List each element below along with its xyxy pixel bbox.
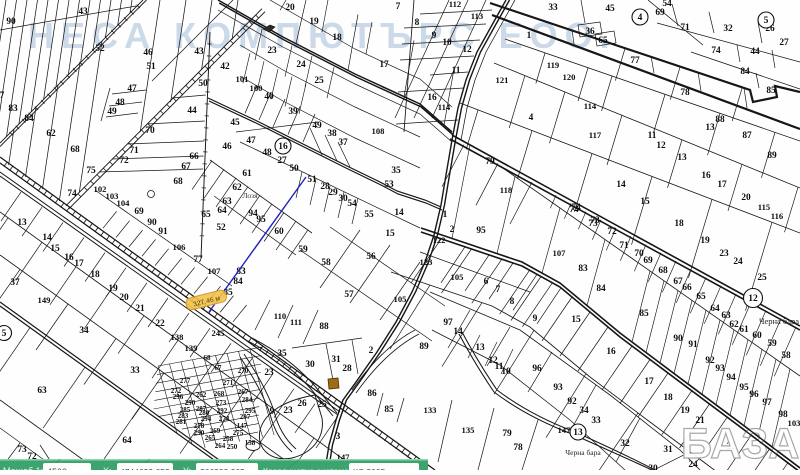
svg-text:Черна бара: Черна бара — [565, 448, 601, 457]
svg-text:16: 16 — [427, 93, 437, 103]
svg-text:37: 37 — [10, 278, 20, 288]
svg-text:21: 21 — [135, 304, 145, 314]
svg-text:35: 35 — [391, 166, 401, 176]
svg-text:75: 75 — [86, 166, 96, 176]
svg-text:98: 98 — [778, 410, 788, 420]
svg-text:19: 19 — [700, 236, 710, 246]
svg-text:6: 6 — [484, 277, 489, 287]
svg-text:18: 18 — [332, 33, 342, 43]
svg-text:33: 33 — [130, 366, 140, 376]
svg-text:9: 9 — [270, 407, 275, 417]
svg-text:4: 4 — [529, 113, 534, 123]
svg-text:290: 290 — [194, 429, 205, 437]
svg-text:5: 5 — [764, 16, 769, 26]
svg-text:17: 17 — [74, 259, 84, 269]
svg-text:52: 52 — [95, 44, 105, 54]
svg-text:33: 33 — [548, 3, 558, 13]
svg-text:88: 88 — [319, 322, 329, 332]
svg-text:2: 2 — [450, 225, 455, 235]
svg-text:58: 58 — [321, 258, 331, 268]
svg-text:54: 54 — [662, 0, 672, 9]
svg-text:10: 10 — [501, 367, 511, 377]
svg-text:264: 264 — [215, 442, 226, 450]
svg-text:73: 73 — [17, 445, 27, 455]
svg-text:62: 62 — [46, 129, 56, 139]
svg-text:62: 62 — [729, 320, 739, 330]
svg-text:84: 84 — [233, 277, 243, 287]
svg-text:Лозя: Лозя — [242, 191, 258, 200]
svg-text:28: 28 — [342, 364, 352, 374]
svg-text:85: 85 — [639, 309, 649, 319]
svg-text:14: 14 — [453, 327, 463, 337]
svg-text:114: 114 — [584, 101, 597, 111]
svg-text:16: 16 — [64, 253, 74, 263]
svg-text:95: 95 — [256, 215, 266, 225]
svg-text:60: 60 — [752, 331, 762, 341]
svg-text:23: 23 — [719, 249, 729, 259]
svg-text:269: 269 — [210, 427, 221, 435]
svg-text:92: 92 — [567, 397, 577, 407]
svg-text:94: 94 — [726, 373, 736, 383]
svg-text:32: 32 — [620, 439, 630, 449]
svg-text:104: 104 — [117, 198, 131, 208]
svg-text:1: 1 — [443, 210, 448, 220]
svg-text:18: 18 — [674, 219, 684, 229]
svg-text:30: 30 — [305, 360, 315, 370]
svg-text:72: 72 — [607, 227, 617, 237]
svg-text:23: 23 — [267, 46, 277, 56]
svg-text:39: 39 — [288, 107, 298, 117]
svg-text:15: 15 — [50, 244, 60, 254]
svg-text:1: 1 — [527, 31, 532, 41]
svg-text:65: 65 — [696, 292, 706, 302]
svg-text:7: 7 — [0, 91, 5, 101]
svg-text:13: 13 — [573, 428, 583, 438]
svg-text:118: 118 — [500, 185, 513, 195]
svg-text:59: 59 — [298, 245, 308, 255]
svg-text:43: 43 — [78, 7, 88, 17]
svg-text:105: 105 — [451, 272, 464, 282]
svg-text:79: 79 — [502, 429, 512, 439]
svg-text:275: 275 — [233, 429, 244, 437]
svg-text:11: 11 — [452, 66, 461, 76]
svg-text:90: 90 — [6, 17, 16, 27]
svg-text:296: 296 — [173, 393, 184, 401]
svg-text:15: 15 — [571, 315, 581, 325]
svg-text:115: 115 — [758, 202, 770, 212]
svg-text:16: 16 — [701, 171, 711, 181]
svg-text:4: 4 — [638, 13, 643, 23]
svg-text:3: 3 — [336, 432, 341, 442]
svg-text:50: 50 — [198, 79, 208, 89]
svg-text:70: 70 — [145, 126, 155, 136]
svg-text:74: 74 — [711, 46, 721, 56]
svg-text:16: 16 — [278, 142, 288, 152]
svg-text:267: 267 — [238, 388, 249, 396]
svg-text:93: 93 — [715, 364, 725, 374]
svg-text:96: 96 — [749, 390, 759, 400]
svg-text:95: 95 — [739, 383, 749, 393]
svg-text:147: 147 — [558, 425, 572, 435]
svg-text:8: 8 — [415, 18, 420, 28]
svg-text:62: 62 — [232, 183, 242, 193]
svg-text:14: 14 — [42, 233, 52, 243]
svg-text:17: 17 — [717, 180, 727, 190]
svg-text:24: 24 — [733, 257, 743, 267]
svg-text:139: 139 — [185, 343, 198, 353]
svg-text:20: 20 — [119, 293, 129, 303]
svg-text:112: 112 — [449, 0, 461, 9]
svg-text:133: 133 — [424, 405, 437, 415]
svg-text:87: 87 — [742, 131, 752, 141]
svg-text:83: 83 — [8, 104, 18, 114]
svg-text:89: 89 — [419, 342, 429, 352]
svg-text:19: 19 — [108, 284, 118, 294]
svg-text:250: 250 — [227, 443, 238, 451]
svg-text:45: 45 — [230, 118, 240, 128]
svg-text:270: 270 — [238, 367, 249, 375]
svg-text:91: 91 — [158, 227, 168, 237]
svg-text:15: 15 — [640, 197, 650, 207]
svg-text:54: 54 — [347, 199, 357, 209]
svg-text:30: 30 — [648, 464, 658, 470]
svg-text:19: 19 — [680, 406, 690, 416]
svg-text:Координатна система: Координатна система — [263, 466, 349, 470]
svg-text:117: 117 — [589, 130, 602, 140]
svg-text:2: 2 — [369, 346, 374, 356]
svg-text:121: 121 — [496, 75, 509, 85]
svg-text:46: 46 — [143, 48, 153, 58]
svg-text:71: 71 — [680, 23, 690, 33]
svg-text:86: 86 — [367, 389, 377, 399]
svg-text:69: 69 — [643, 256, 653, 266]
svg-text:51: 51 — [307, 175, 317, 185]
svg-text:50: 50 — [289, 164, 299, 174]
svg-text:61: 61 — [242, 169, 252, 179]
svg-text:74: 74 — [67, 189, 77, 199]
svg-text:38: 38 — [327, 129, 337, 139]
svg-text:88: 88 — [715, 115, 725, 125]
svg-text:20: 20 — [285, 3, 295, 13]
svg-text:7: 7 — [396, 2, 401, 12]
svg-text:43: 43 — [194, 47, 204, 57]
svg-text:105: 105 — [394, 294, 407, 304]
svg-text:10: 10 — [442, 38, 452, 48]
svg-text:17: 17 — [644, 377, 654, 387]
svg-text:29: 29 — [328, 188, 338, 198]
svg-text:93: 93 — [553, 383, 563, 393]
svg-text:120: 120 — [563, 72, 576, 82]
svg-text:67: 67 — [215, 364, 223, 372]
svg-text:268: 268 — [214, 390, 225, 398]
svg-text:281: 281 — [176, 418, 187, 426]
svg-text:71: 71 — [619, 241, 629, 251]
svg-text:83: 83 — [578, 264, 588, 274]
svg-text:37: 37 — [338, 138, 348, 148]
svg-text:47: 47 — [246, 136, 256, 146]
svg-text:23: 23 — [264, 368, 274, 378]
svg-text:79: 79 — [485, 157, 495, 167]
svg-text:Мащаб 1:: Мащаб 1: — [3, 466, 43, 470]
svg-text:110: 110 — [274, 311, 286, 321]
svg-text:74: 74 — [569, 205, 579, 215]
svg-text:48: 48 — [262, 148, 272, 158]
svg-text:53: 53 — [384, 180, 394, 190]
svg-text:7: 7 — [496, 285, 501, 295]
svg-text:12: 12 — [462, 45, 472, 55]
svg-text:116: 116 — [771, 211, 784, 221]
svg-text:46: 46 — [222, 142, 232, 152]
svg-text:111: 111 — [290, 317, 302, 327]
svg-text:51: 51 — [146, 62, 156, 72]
svg-text:44: 44 — [187, 106, 197, 116]
svg-text:297: 297 — [240, 413, 251, 421]
svg-text:119: 119 — [547, 60, 559, 70]
svg-text:96: 96 — [532, 364, 542, 374]
svg-text:72: 72 — [119, 156, 129, 166]
svg-text:123: 123 — [420, 257, 433, 267]
svg-text:277: 277 — [180, 377, 191, 385]
svg-text:294: 294 — [201, 415, 212, 423]
svg-text:14: 14 — [616, 180, 626, 190]
svg-text:35: 35 — [277, 349, 287, 359]
svg-text:284: 284 — [242, 396, 253, 404]
svg-text:292: 292 — [217, 407, 228, 415]
svg-text:271: 271 — [223, 379, 234, 387]
svg-text:107: 107 — [553, 248, 567, 258]
svg-text:34: 34 — [79, 326, 89, 336]
svg-text:49: 49 — [107, 107, 117, 117]
svg-text:108: 108 — [372, 126, 386, 136]
svg-text:23: 23 — [283, 406, 293, 416]
svg-text:97: 97 — [762, 398, 772, 408]
svg-text:40: 40 — [264, 92, 274, 102]
svg-text:18: 18 — [663, 393, 673, 403]
svg-text:63: 63 — [37, 386, 47, 396]
svg-text:19: 19 — [309, 17, 319, 27]
svg-text:92: 92 — [705, 356, 715, 366]
svg-text:44: 44 — [750, 47, 760, 57]
svg-text:64: 64 — [710, 304, 720, 314]
svg-text:13: 13 — [17, 218, 27, 228]
svg-text:122: 122 — [433, 235, 446, 245]
svg-text:85: 85 — [766, 86, 776, 96]
svg-text:68: 68 — [173, 177, 183, 187]
svg-text:47: 47 — [127, 84, 137, 94]
svg-text:8: 8 — [510, 297, 515, 307]
svg-text:84: 84 — [596, 284, 606, 294]
svg-text:77: 77 — [630, 56, 640, 66]
svg-text:67: 67 — [181, 162, 191, 172]
svg-text:56: 56 — [366, 252, 376, 262]
svg-text:66: 66 — [189, 152, 199, 162]
svg-text:33: 33 — [591, 416, 601, 426]
svg-text:45: 45 — [605, 4, 615, 14]
svg-text:57: 57 — [344, 290, 354, 300]
svg-text:61: 61 — [739, 325, 749, 335]
svg-text:78: 78 — [680, 88, 690, 98]
svg-text:59: 59 — [767, 339, 777, 349]
svg-text:36: 36 — [585, 27, 595, 37]
svg-text:X:: X: — [103, 466, 112, 470]
svg-text:15: 15 — [385, 229, 395, 239]
svg-text:71: 71 — [129, 146, 139, 156]
svg-text:Черна бара: Черна бара — [759, 316, 799, 326]
svg-text:31: 31 — [331, 355, 341, 365]
svg-text:274: 274 — [219, 415, 230, 423]
svg-text:273: 273 — [216, 399, 227, 407]
svg-text:12: 12 — [656, 141, 666, 151]
svg-text:27: 27 — [277, 156, 287, 166]
svg-text:49: 49 — [312, 121, 322, 131]
svg-text:78: 78 — [513, 443, 523, 453]
svg-text:113: 113 — [471, 11, 483, 21]
svg-text:31: 31 — [663, 445, 673, 455]
svg-text:102: 102 — [94, 184, 107, 194]
svg-text:245: 245 — [212, 328, 225, 338]
svg-text:262: 262 — [196, 391, 207, 399]
svg-text:22: 22 — [155, 319, 165, 329]
svg-text:107: 107 — [208, 266, 222, 276]
svg-text:265: 265 — [205, 434, 216, 442]
svg-text:158: 158 — [245, 439, 256, 447]
svg-text:20: 20 — [741, 193, 751, 203]
svg-text:11: 11 — [648, 131, 657, 141]
svg-text:101: 101 — [236, 74, 249, 84]
svg-text:14: 14 — [394, 208, 404, 218]
svg-text:95: 95 — [476, 226, 486, 236]
svg-text:52: 52 — [216, 223, 226, 233]
svg-text:69: 69 — [134, 207, 144, 217]
svg-text:90: 90 — [147, 218, 157, 228]
svg-text:42: 42 — [220, 62, 230, 72]
svg-text:84: 84 — [740, 67, 750, 77]
svg-text:13: 13 — [705, 123, 715, 133]
svg-text:60: 60 — [274, 227, 284, 237]
svg-text:9: 9 — [533, 314, 538, 324]
svg-text:55: 55 — [364, 210, 374, 220]
svg-text:64: 64 — [122, 436, 132, 446]
svg-text:48: 48 — [115, 98, 125, 108]
svg-text:149: 149 — [38, 295, 51, 305]
svg-text:32: 32 — [723, 24, 733, 34]
svg-text:91: 91 — [688, 340, 698, 350]
svg-text:24: 24 — [296, 60, 306, 70]
svg-text:100: 100 — [250, 83, 263, 93]
svg-text:25: 25 — [314, 76, 324, 86]
svg-text:Y:: Y: — [183, 466, 191, 470]
svg-text:89: 89 — [767, 151, 777, 161]
svg-text:5: 5 — [2, 329, 7, 339]
svg-text:66: 66 — [682, 283, 692, 293]
svg-text:106: 106 — [173, 242, 187, 252]
svg-text:73: 73 — [588, 219, 598, 229]
svg-text:27: 27 — [779, 38, 789, 48]
svg-text:12: 12 — [748, 294, 758, 304]
svg-text:135: 135 — [462, 425, 475, 435]
svg-text:64: 64 — [217, 206, 227, 216]
svg-text:69: 69 — [655, 8, 665, 18]
svg-text:65: 65 — [598, 36, 608, 46]
svg-text:90: 90 — [673, 334, 683, 344]
svg-text:97: 97 — [443, 318, 453, 328]
svg-text:65: 65 — [201, 210, 211, 220]
svg-text:9: 9 — [432, 31, 437, 41]
svg-text:85: 85 — [384, 405, 394, 415]
svg-text:68: 68 — [658, 266, 668, 276]
svg-text:34: 34 — [579, 406, 589, 416]
svg-text:58: 58 — [781, 351, 791, 361]
svg-text:138: 138 — [171, 332, 185, 342]
svg-text:18: 18 — [90, 270, 100, 280]
svg-text:114: 114 — [438, 102, 451, 112]
svg-text:84: 84 — [24, 114, 34, 124]
svg-text:13: 13 — [677, 153, 687, 163]
svg-text:13: 13 — [475, 343, 485, 353]
svg-text:25: 25 — [757, 273, 767, 283]
svg-text:77: 77 — [193, 255, 203, 265]
svg-text:16: 16 — [606, 347, 616, 357]
svg-text:17: 17 — [379, 60, 389, 70]
svg-text:25: 25 — [317, 400, 327, 410]
svg-text:68: 68 — [70, 145, 80, 155]
svg-text:26: 26 — [297, 399, 307, 409]
svg-text:68: 68 — [204, 354, 212, 362]
